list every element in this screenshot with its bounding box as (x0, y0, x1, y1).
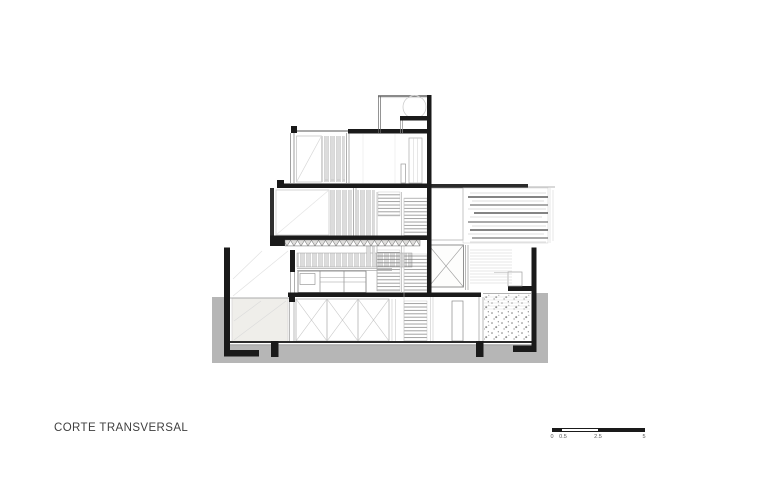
louver-top-bar (431, 184, 528, 188)
ground-right (536, 293, 548, 363)
terrace-sketch-lines (233, 251, 288, 296)
drawing-title: CORTE TRANSVERSAL (54, 422, 188, 434)
level2-slat-screen-b (357, 190, 375, 236)
roof-slab (348, 129, 431, 134)
vegetation-patio (484, 294, 530, 342)
scale-label-25: 2.5 (594, 434, 602, 440)
hedge-elevation-lines (470, 250, 512, 283)
scale-bar (552, 428, 645, 432)
scale-label-5: 5 (642, 434, 645, 440)
kitchen-wall-top (290, 250, 295, 272)
basement-door (452, 301, 463, 341)
level1-stair-flight-a (377, 250, 400, 291)
scale-label-05: 0.5 (559, 434, 567, 440)
level3-fixture (401, 164, 406, 183)
louver-screen (431, 184, 555, 243)
deck-hatch-band (285, 240, 420, 246)
main-structural-wall (427, 95, 432, 295)
section-drawing (0, 0, 760, 492)
level2-left-wall (270, 188, 274, 236)
level3-floor-slab (278, 184, 431, 189)
level2-stair-flight-a (378, 192, 400, 216)
level2-glass-panel (276, 190, 329, 235)
level2-floor-slab (270, 236, 431, 241)
scale-bar-segment-white (561, 428, 599, 432)
louver-box (431, 188, 463, 240)
louver-lines (468, 193, 548, 242)
level-3 (277, 126, 431, 188)
louver-frame (463, 188, 548, 243)
patio-wall-lines (479, 297, 483, 341)
sheet: CORTE TRANSVERSAL 0 0.5 2.5 5 (0, 0, 760, 492)
level3-partition (347, 133, 350, 183)
louver-end-posts (550, 188, 553, 243)
penthouse-interior-slab (400, 116, 427, 121)
penthouse-left-wall (379, 96, 381, 133)
x-brace-door (429, 245, 464, 287)
penthouse (378, 96, 428, 134)
x-brace-panels (296, 299, 389, 341)
level-1 (233, 245, 512, 297)
kitchen-wall-lines (291, 272, 295, 293)
level2-slat-screen-a (330, 190, 352, 236)
level3-glazing-lines (363, 134, 395, 183)
level3-door-panel (297, 136, 322, 182)
scale-label-0: 0 (550, 434, 553, 440)
basement-wall-lines (290, 302, 295, 341)
level3-slat-screen (322, 136, 345, 182)
level1-stair-flight-b (404, 254, 427, 293)
stair-slat-band (365, 245, 375, 262)
scale-bar-segment-black-1 (552, 428, 561, 432)
kitchen-casework (298, 271, 366, 293)
basement-stair (404, 301, 427, 341)
basement-wall-stub (289, 297, 295, 302)
glass-mullion (466, 245, 469, 290)
ground-bottom (212, 345, 548, 363)
level1-floor-slab (288, 293, 481, 298)
level3-left-wall (291, 133, 295, 183)
round-fixture (403, 96, 426, 119)
level2-stair-flight-b (404, 198, 427, 238)
scale-bar-segment-black-2 (599, 428, 645, 432)
level2-partition (354, 188, 357, 236)
level3-slab-end-block (277, 180, 284, 188)
level3-wardrobe (409, 138, 422, 183)
parapet-end-block (291, 126, 297, 133)
